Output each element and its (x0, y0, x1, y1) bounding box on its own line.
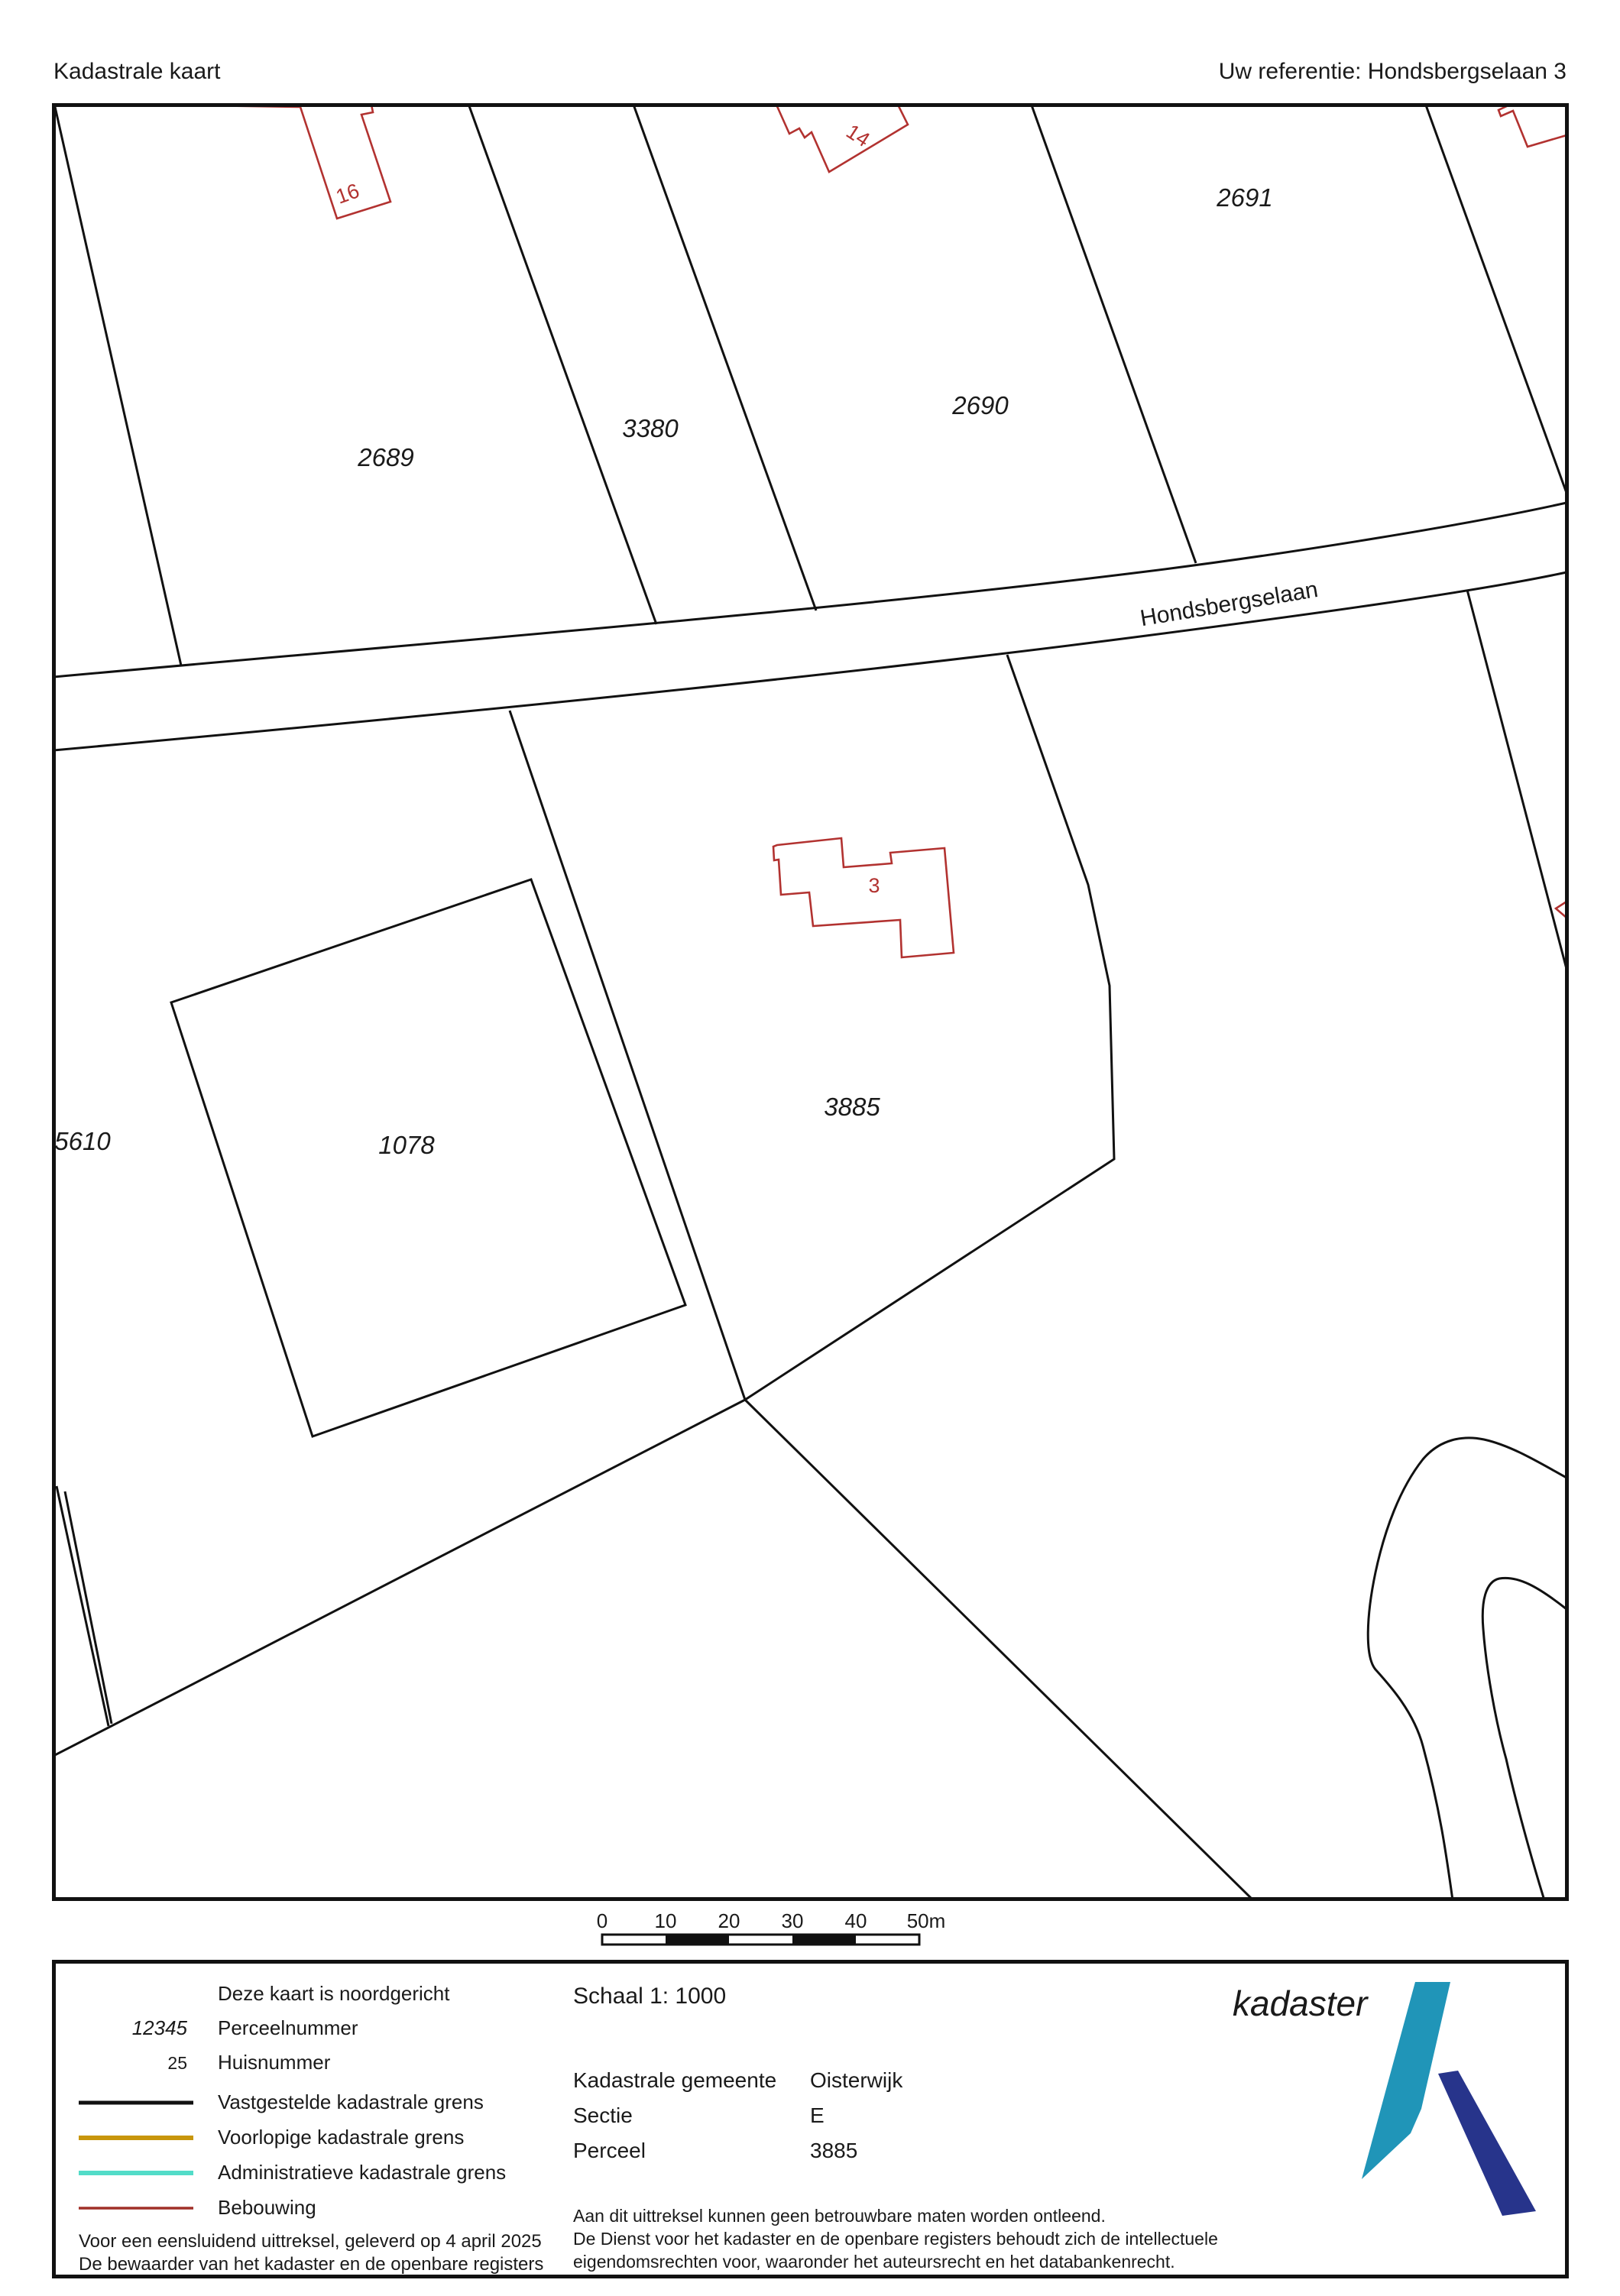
scale-tick-10: 10 (655, 1909, 677, 1932)
disclaimer-line-3: eigendomsrechten voor, waaronder het aut… (573, 2252, 1175, 2272)
parcel-label-5610: 5610 (54, 1127, 111, 1155)
legend-item-vastgestelde: Vastgestelde kadastrale grens (218, 2090, 484, 2113)
scale-bar-outline (602, 1935, 919, 1945)
legend-item-administratieve: Administratieve kadastrale grens (218, 2161, 506, 2184)
footer-line-2: De bewaarder van het kadaster en de open… (79, 2254, 543, 2275)
parcel-label-3885: 3885 (824, 1093, 880, 1121)
scale-tick-50m: 50m (907, 1909, 946, 1932)
disclaimer-line-2: De Dienst voor het kadaster en de openba… (573, 2229, 1218, 2249)
scale-tick-20: 20 (718, 1909, 740, 1932)
disclaimer-line-1: Aan dit uittreksel kunnen geen betrouwba… (573, 2206, 1106, 2226)
schaal-label: Schaal 1: 1000 (573, 1983, 726, 2009)
scale-tick-30: 30 (782, 1909, 804, 1932)
scale-tick-40: 40 (845, 1909, 867, 1932)
detail-row-sectie-label: Sectie (573, 2103, 633, 2127)
cadastral-map-page: Kadastrale kaart Uw referentie: Hondsber… (0, 0, 1620, 2292)
logo-text: kadaster (1233, 1983, 1369, 2023)
page-title: Kadastrale kaart (53, 59, 221, 84)
north-note: Deze kaart is noordgericht (218, 1982, 450, 2005)
detail-row-perceel-value: 3885 (810, 2139, 857, 2162)
legend-house-label: Huisnummer (218, 2051, 331, 2074)
map-frame (54, 105, 1567, 1899)
parcel-label-2689: 2689 (357, 443, 413, 471)
scale-segment-black-1 (666, 1935, 729, 1945)
scale-tick-0: 0 (597, 1909, 607, 1932)
scale-segment-black-2 (792, 1935, 856, 1945)
header-reference: Uw referentie: Hondsbergselaan 3 (1219, 59, 1567, 84)
map-document-svg: Kadastrale kaart Uw referentie: Hondsber… (0, 0, 1620, 2292)
parcel-label-2690: 2690 (951, 391, 1009, 419)
parcel-label-3380: 3380 (622, 414, 679, 442)
parcel-label-2691: 2691 (1216, 183, 1272, 212)
footer-line-1: Voor een eensluidend uittreksel, gelever… (79, 2231, 542, 2252)
legend-house-sample: 25 (167, 2053, 187, 2073)
detail-row-gemeente-label: Kadastrale gemeente (573, 2068, 776, 2092)
legend-item-voorlopige: Voorlopige kadastrale grens (218, 2126, 464, 2149)
detail-row-sectie-value: E (810, 2103, 825, 2127)
detail-row-perceel-label: Perceel (573, 2139, 646, 2162)
scale-bar: 0 10 20 30 40 50m (597, 1909, 946, 1945)
house-number-3: 3 (868, 874, 880, 897)
legend-parcel-sample: 12345 (132, 2016, 188, 2039)
legend-item-bebouwing: Bebouwing (218, 2196, 316, 2219)
parcel-label-1078: 1078 (378, 1131, 435, 1159)
legend-parcel-label: Perceelnummer (218, 2016, 358, 2039)
detail-row-gemeente-value: Oisterwijk (810, 2068, 903, 2092)
